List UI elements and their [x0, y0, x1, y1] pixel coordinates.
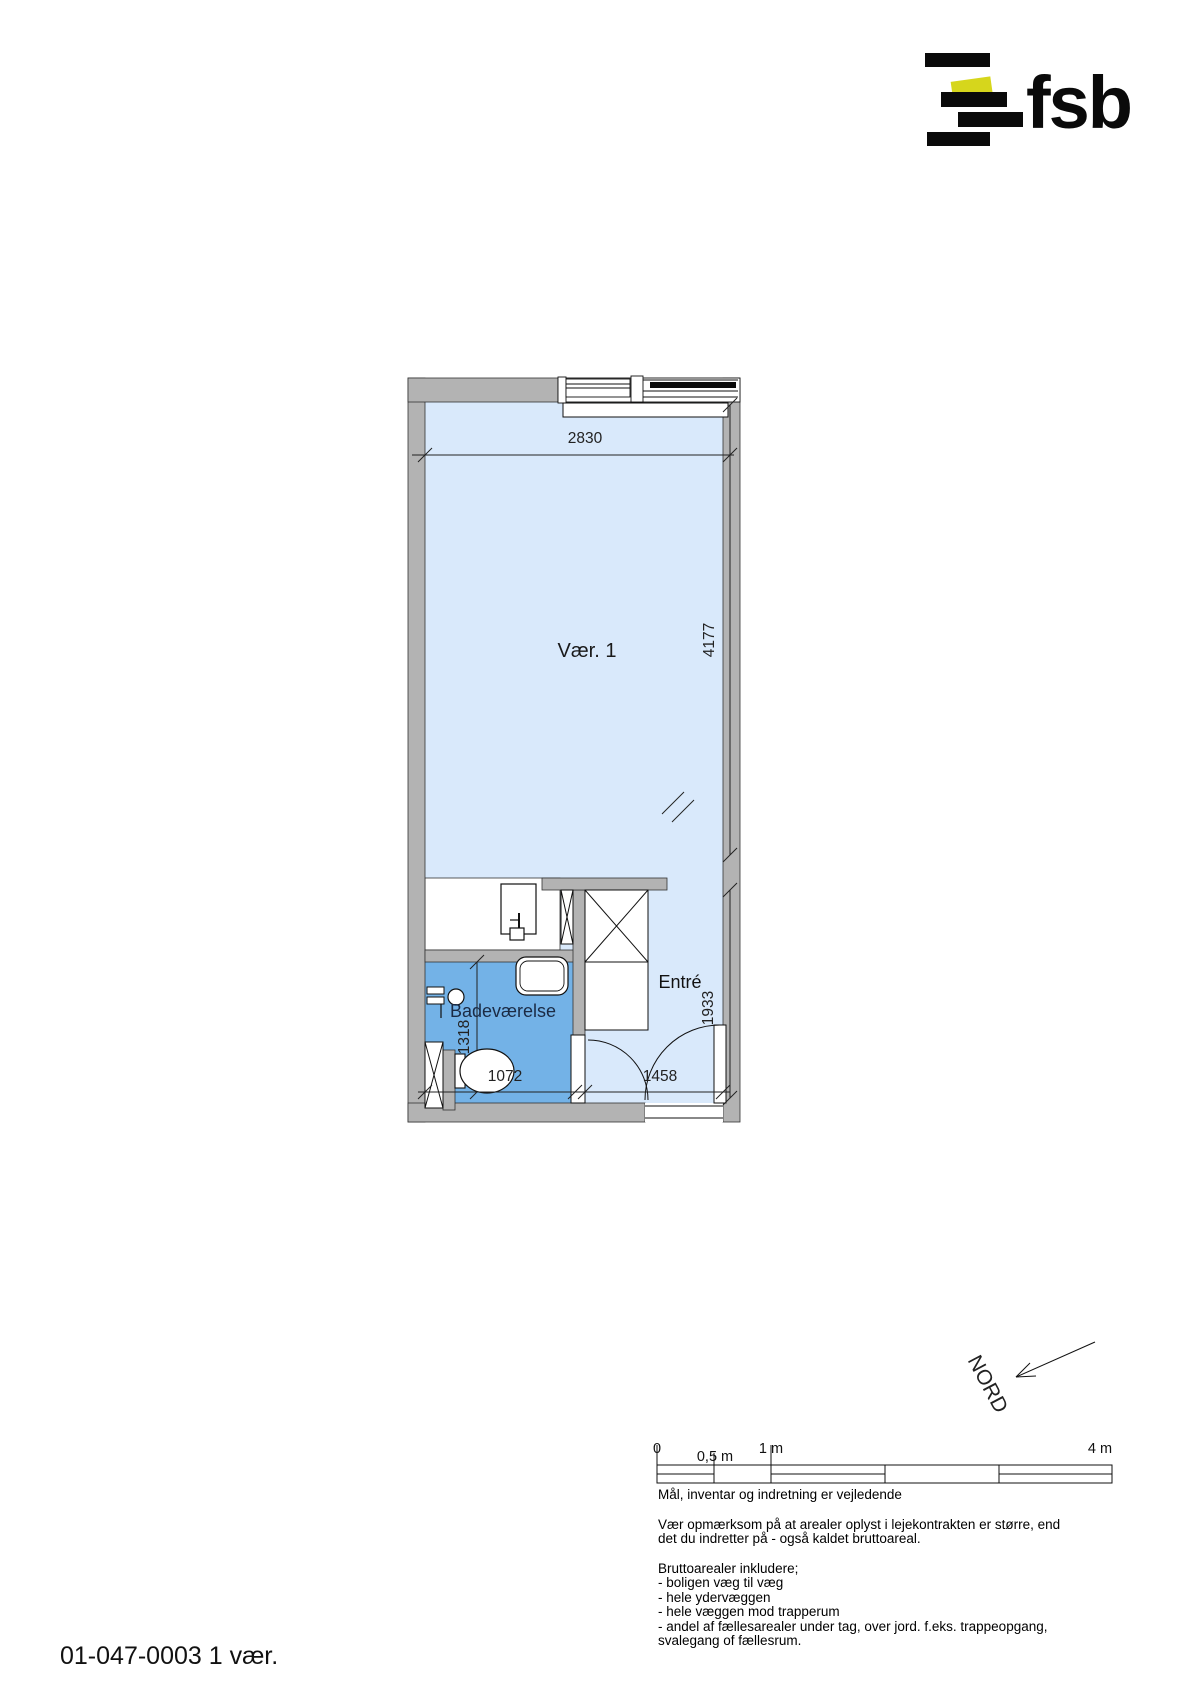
footer-notice: Vær opmærksom på at arealer oplyst i lej…	[658, 1518, 1123, 1547]
dim-entry-label: 1933	[700, 991, 717, 1025]
floor-plan-drawing: 2830 4177 1933 1318 1072 1458 Vær. 1 Bad…	[0, 0, 1200, 1697]
footer-notice-line2: det du indretter på - også kaldet brutto…	[658, 1532, 1123, 1547]
footer-gross-area: Bruttoarealer inkludere; - boligen væg t…	[658, 1562, 1123, 1649]
north-indicator: NORD	[963, 1342, 1095, 1417]
north-arrow-shaft	[1016, 1342, 1095, 1377]
dim-entry-width-label: 1458	[643, 1068, 677, 1085]
north-arrow-head-2	[1016, 1363, 1030, 1377]
wall-stub-toilet	[443, 1050, 455, 1110]
footer-notice-line1: Vær opmærksom på at arealer oplyst i lej…	[658, 1518, 1123, 1533]
footer-notes: Mål, inventar og indretning er vejledend…	[658, 1488, 1123, 1649]
gross-area-line: - boligen væg til væg	[658, 1576, 1123, 1591]
room-label-entre: Entré	[658, 972, 701, 992]
gross-area-line: - hele ydervæggen	[658, 1591, 1123, 1606]
scale-label-1: 1 m	[759, 1441, 783, 1457]
room-label-vaer1: Vær. 1	[558, 640, 617, 662]
apartment-id: 01-047-0003 1 vær.	[60, 1642, 278, 1671]
washbasin-shelf-2	[427, 997, 444, 1004]
footer-guideline: Mål, inventar og indretning er vejledend…	[658, 1488, 1123, 1503]
scale-label-4: 4 m	[1088, 1441, 1112, 1457]
wall-bathroom-right	[573, 890, 585, 1035]
wall-right	[723, 378, 740, 1122]
wall-left	[408, 378, 425, 1122]
north-label: NORD	[963, 1352, 1012, 1417]
balcony-door-leaf	[650, 382, 736, 388]
kitchen-nook	[425, 878, 560, 950]
gross-area-line: - hele væggen mod trapperum	[658, 1605, 1123, 1620]
dim-top-label: 2830	[568, 430, 603, 447]
window-mullion	[631, 376, 643, 402]
dim-right-label: 4177	[701, 623, 718, 657]
scale-label-0: 0	[653, 1441, 661, 1457]
wall-top	[408, 378, 558, 402]
kitchen-counter	[425, 878, 560, 950]
washbasin-shelf-1	[427, 987, 444, 994]
dim-bath-width-label: 1072	[488, 1068, 522, 1085]
entry-passage-floor	[667, 878, 723, 890]
bathroom-door-leaf	[571, 1035, 585, 1103]
gross-area-line: svalegang of fællesrum.	[658, 1634, 1123, 1649]
wall-entry-top	[542, 878, 667, 890]
page: fsb	[0, 0, 1200, 1697]
scale-bar: 0 0,5 m 1 m 4 m	[653, 1441, 1112, 1483]
wardrobe-entry	[585, 962, 648, 1030]
bathtub-inner	[520, 961, 564, 991]
scale-label-05: 0,5 m	[697, 1449, 733, 1465]
gross-area-line: Bruttoarealer inkludere;	[658, 1562, 1123, 1577]
room-label-badevaerelse: Badeværelse	[450, 1001, 556, 1021]
window-assembly	[558, 376, 740, 417]
dim-bath-height-label: 1318	[456, 1020, 473, 1054]
window-frame-left-end	[558, 377, 566, 403]
radiator	[563, 403, 728, 417]
sink-drain	[510, 928, 524, 940]
gross-area-line: - andel af fællesarealer under tag, over…	[658, 1620, 1123, 1635]
